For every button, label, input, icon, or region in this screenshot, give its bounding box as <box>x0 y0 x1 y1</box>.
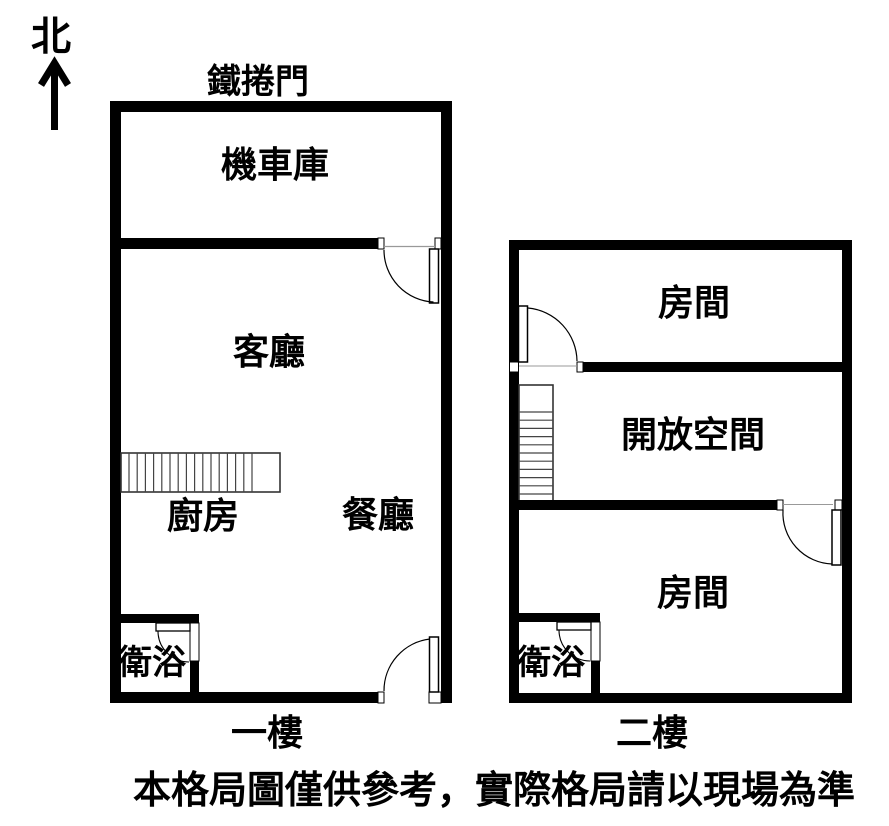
floor1-bottom-wall <box>110 692 378 703</box>
north-arrow-shaft <box>51 66 58 130</box>
floor1-garage-door-arc <box>384 250 434 302</box>
floor2-open-space-wall <box>509 500 777 510</box>
floor2-room-top-door-hinge-jamb <box>510 362 519 372</box>
floor2-room-bottom-door-leaf <box>832 510 841 565</box>
floor1-plan <box>110 101 452 703</box>
floor1-bath-doorway <box>190 623 199 661</box>
floor2-bath-label: 衛浴 <box>517 646 585 680</box>
floor2-stairs <box>519 385 553 502</box>
floor1-entry-door-jamb-right <box>429 692 441 703</box>
floor1-right-wall <box>441 101 452 703</box>
floor2-room-bottom-door-jamb-left <box>777 500 783 510</box>
garage-label: 機車庫 <box>221 147 329 183</box>
floor2-bottom-wall <box>509 693 852 703</box>
floor2-room-top-wall <box>583 362 852 372</box>
floor2-room-bottom-door-arc <box>783 510 832 564</box>
north-arrow <box>41 63 68 130</box>
floor2-room-bottom-door-jamb-right <box>835 500 842 510</box>
floor2-left-wall <box>509 240 519 703</box>
floor1-bath-label: 衛浴 <box>118 646 186 680</box>
floor1-entry-door-jamb-left <box>378 692 384 703</box>
living-room-label: 客廳 <box>233 334 305 370</box>
open-space-label: 開放空間 <box>621 417 765 453</box>
floor2-room-top-door-jamb <box>577 362 583 372</box>
floor2-room-top-door-arc <box>528 308 577 361</box>
floor1-top-wall <box>110 101 452 112</box>
floor1-entry-door-arc <box>384 639 430 691</box>
floor2-room-bottom-label: 房間 <box>657 575 729 611</box>
floor2-top-wall <box>509 240 852 250</box>
roller-door-label: 鐵捲門 <box>207 65 309 99</box>
floor1-garage-door-jamb-left <box>378 238 384 249</box>
floor2-bath-top-wall <box>509 613 600 622</box>
disclaimer-text: 本格局圖僅供參考，實際格局請以現場為準 <box>133 772 855 810</box>
floor1-entry-door-leaf <box>430 637 439 692</box>
floor1-garage-door-jamb-right <box>435 238 441 249</box>
north-label: 北 <box>31 17 71 57</box>
kitchen-label: 廚房 <box>167 498 239 534</box>
floor1-bath-door-leaf <box>156 623 190 631</box>
floor1-left-wall <box>110 101 121 703</box>
floor2-name-label: 二樓 <box>616 715 688 751</box>
floor1-garage-wall <box>110 238 378 249</box>
floor1-name-label: 一樓 <box>231 715 303 751</box>
floor2-bath-door-leaf <box>557 622 591 630</box>
floor1-garage-door-leaf <box>430 249 439 303</box>
floor2-right-wall <box>842 240 852 703</box>
floor2-room-top-door-leaf <box>519 306 528 362</box>
floorplan-canvas: 北 鐵捲門 機車庫 客廳 廚房 餐廳 衛浴 一樓 房間 開放空間 房間 衛浴 二… <box>0 0 889 826</box>
dining-room-label: 餐廳 <box>342 497 414 533</box>
floor1-bath-top-wall <box>110 614 199 623</box>
plan-drawing <box>0 0 889 826</box>
floor2-room-top-label: 房間 <box>658 285 730 321</box>
floor2-bath-doorway <box>591 622 600 661</box>
floor1-stairs <box>121 453 280 492</box>
